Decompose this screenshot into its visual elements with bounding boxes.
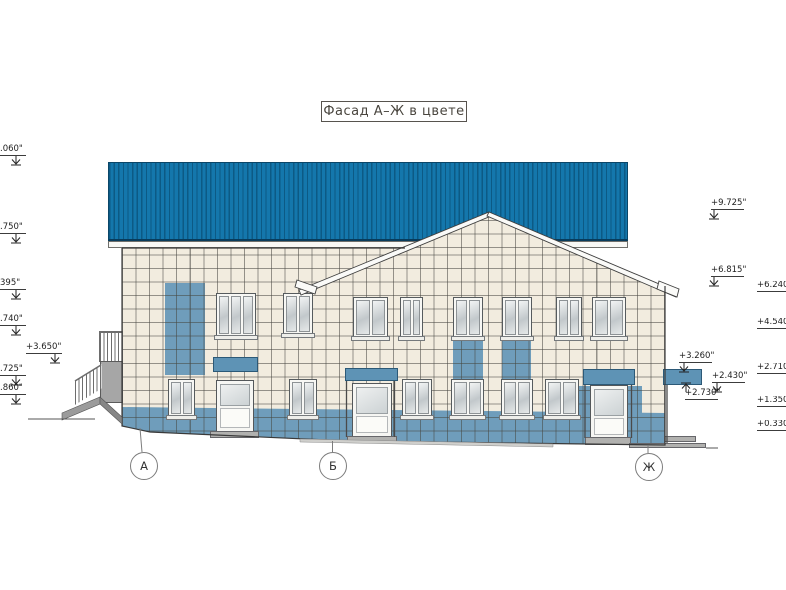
elevation-mark: +3.650"	[26, 343, 62, 354]
elevation-mark: +0.330"	[757, 420, 786, 431]
elevation-mark: .860"	[0, 384, 26, 395]
drawing-linework	[0, 0, 786, 590]
axis-marker-b: Б	[319, 452, 347, 480]
elevation-mark: .750"	[0, 223, 26, 234]
axis-marker-a: А	[130, 452, 158, 480]
elevation-mark: +3.260"	[679, 352, 712, 363]
elevation-mark: .740"	[0, 315, 26, 326]
elevation-mark: +2.430"	[712, 372, 745, 383]
axis-marker-zh: Ж	[635, 453, 663, 481]
elevation-mark: +2.730"	[685, 389, 718, 400]
elevation-mark: +4.540"	[757, 318, 786, 329]
elevation-mark: .725"	[0, 365, 26, 376]
elevation-mark: +6.240"	[757, 281, 786, 292]
facade-drawing: Фасад А–Ж в цвете	[0, 0, 786, 590]
elevation-mark: +1.350"	[757, 396, 786, 407]
elevation-mark: +2.710"	[757, 363, 786, 374]
elevation-mark: .060"	[0, 145, 26, 156]
elevation-mark: 395"	[0, 279, 26, 290]
elevation-mark: +6.815"	[711, 266, 744, 277]
elevation-mark: +9.725"	[711, 199, 744, 210]
